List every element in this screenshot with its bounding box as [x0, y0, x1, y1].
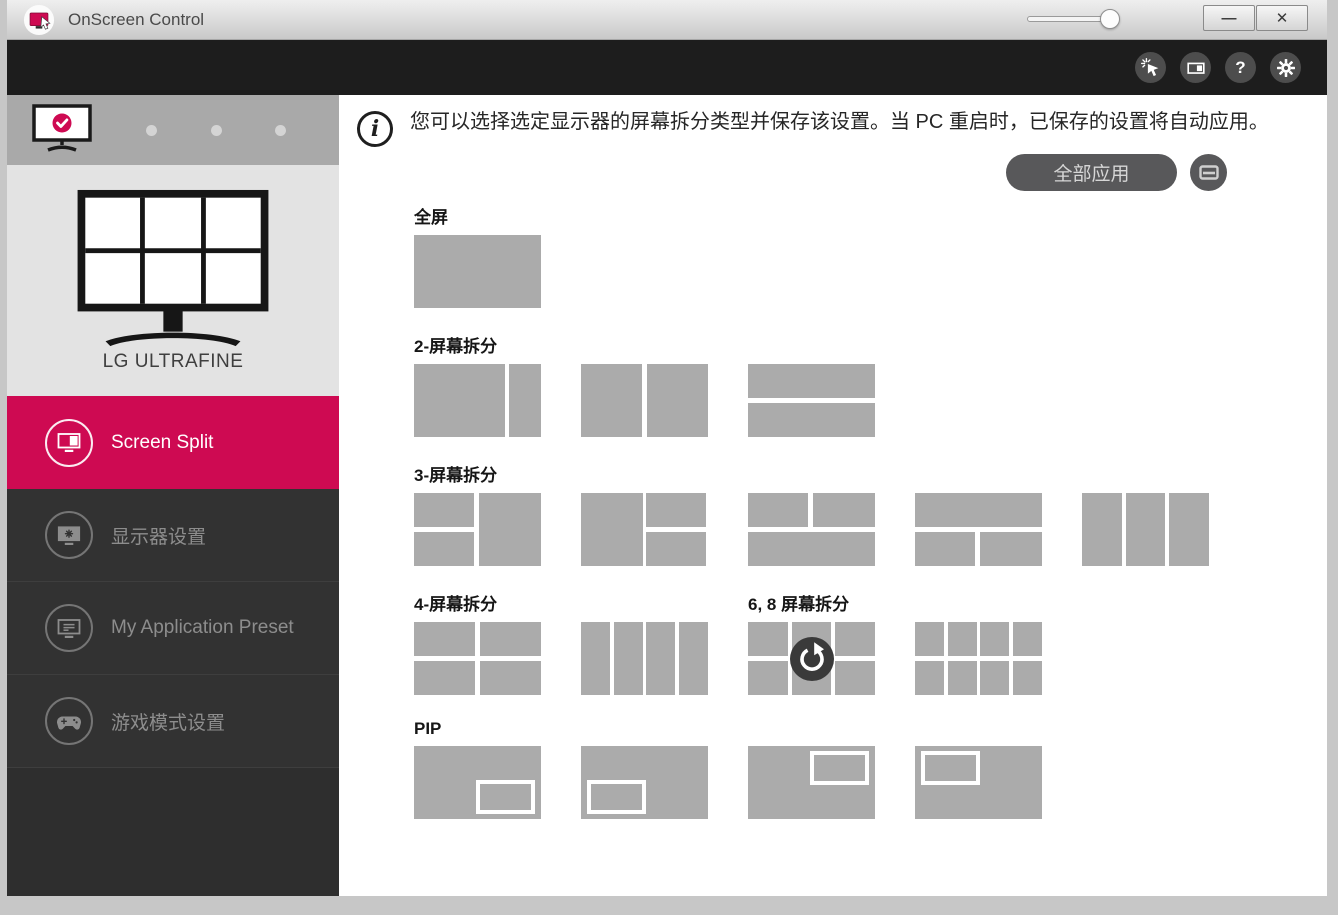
- split-cell: [414, 661, 475, 695]
- minimize-button[interactable]: —: [1203, 5, 1255, 31]
- app-window: OnScreen Control — ✕ ?: [0, 0, 1338, 915]
- split-thumb-4-split-grid[interactable]: [414, 622, 541, 695]
- apply-all-button[interactable]: 全部应用: [1006, 154, 1177, 191]
- auto-click-icon[interactable]: [1135, 52, 1166, 83]
- split-section: 3-屏幕拆分: [414, 461, 1209, 566]
- sidebar: LG ULTRAFINE Screen Split显示器设置My Applica…: [7, 95, 339, 896]
- split-thumb-2-split-left-wide[interactable]: [414, 364, 541, 437]
- split-cell: [1126, 493, 1166, 566]
- screen-split-icon: [45, 419, 93, 467]
- split-cell: [480, 622, 541, 656]
- sidebar-filler: [7, 768, 339, 896]
- opacity-slider-handle[interactable]: [1100, 9, 1120, 29]
- split-monitor-icon[interactable]: [1180, 52, 1211, 83]
- split-cell: [915, 532, 975, 566]
- section-label: 4-屏幕拆分: [414, 590, 708, 615]
- split-cell: [980, 622, 1009, 656]
- split-cell: [581, 364, 642, 437]
- game-icon: [45, 697, 93, 745]
- split-thumb-3-split-left-stacked[interactable]: [414, 493, 541, 566]
- settings-gear-icon[interactable]: [1270, 52, 1301, 83]
- info-text: 您可以选择选定显示器的屏幕拆分类型并保存该设置。当 PC 重启时，已保存的设置将…: [410, 109, 1307, 147]
- split-cell: [748, 622, 788, 656]
- split-cell: [1013, 661, 1042, 695]
- monitor-settings-icon: [45, 511, 93, 559]
- monitor-dot[interactable]: [275, 125, 286, 136]
- section-label: 3-屏幕拆分: [414, 461, 1209, 486]
- split-cell: [646, 532, 706, 566]
- window-title: OnScreen Control: [68, 10, 204, 30]
- pip-inset-window: [476, 780, 534, 814]
- monitor-preview: LG ULTRAFINE: [7, 165, 339, 396]
- split-cell: [748, 403, 875, 437]
- sidebar-item-label: 显示器设置: [111, 522, 206, 549]
- resize-grip[interactable]: [1333, 910, 1335, 912]
- split-cell: [948, 622, 977, 656]
- rotate-icon[interactable]: [789, 636, 835, 682]
- split-thumb-full-screen[interactable]: [414, 235, 541, 308]
- split-cell: [679, 622, 708, 695]
- sidebar-item-label: My Application Preset: [111, 617, 294, 639]
- help-icon[interactable]: ?: [1225, 52, 1256, 83]
- opacity-slider[interactable]: [1027, 16, 1111, 22]
- app-preset-icon: [45, 604, 93, 652]
- monitor-select-button[interactable]: [1190, 154, 1227, 191]
- monitor-dot[interactable]: [146, 125, 157, 136]
- section-label: 全屏: [414, 203, 541, 228]
- split-thumb-6-split-grid[interactable]: [748, 622, 875, 695]
- monitor-dot[interactable]: [211, 125, 222, 136]
- split-thumb-4-split-columns[interactable]: [581, 622, 708, 695]
- split-cell: [414, 235, 541, 308]
- split-section: 2-屏幕拆分: [414, 332, 875, 437]
- split-cell: [581, 622, 610, 695]
- split-cell: [647, 364, 708, 437]
- split-cell: [748, 532, 875, 566]
- info-icon: i: [357, 111, 393, 147]
- split-cell: [646, 493, 706, 527]
- split-cell: [915, 622, 944, 656]
- sidebar-item-screen-split[interactable]: Screen Split: [7, 396, 339, 489]
- top-toolbar: ?: [7, 40, 1327, 95]
- split-section: PIP: [414, 719, 1042, 819]
- split-cell: [980, 532, 1042, 566]
- split-cell: [1013, 622, 1042, 656]
- sidebar-item-label: 游戏模式设置: [111, 708, 225, 735]
- split-thumb-3-split-bottom-two[interactable]: [915, 493, 1042, 566]
- split-cell: [509, 364, 541, 437]
- split-thumb-pip-top-left[interactable]: [915, 746, 1042, 819]
- section-label: 6, 8 屏幕拆分: [748, 590, 1042, 615]
- close-button[interactable]: ✕: [1256, 5, 1308, 31]
- app-logo-icon: [23, 4, 55, 36]
- split-cell: [1169, 493, 1209, 566]
- split-cell: [414, 622, 475, 656]
- pip-inset-window: [810, 751, 868, 785]
- split-cell: [813, 493, 875, 527]
- split-thumb-pip-top-right[interactable]: [748, 746, 875, 819]
- monitor-name-label: LG ULTRAFINE: [103, 351, 244, 373]
- split-thumb-2-split-horizontal[interactable]: [748, 364, 875, 437]
- split-section: 6, 8 屏幕拆分: [748, 590, 1042, 695]
- split-cell: [479, 493, 541, 566]
- split-cell: [980, 661, 1009, 695]
- split-thumb-3-split-right-stacked[interactable]: [581, 493, 708, 566]
- monitor-selector: [7, 95, 339, 165]
- split-thumb-3-split-top-two[interactable]: [748, 493, 875, 566]
- split-cell: [414, 493, 474, 527]
- sidebar-item-my-application-preset[interactable]: My Application Preset: [7, 582, 339, 675]
- split-cell: [835, 661, 875, 695]
- split-cell: [646, 622, 675, 695]
- split-cell: [748, 661, 788, 695]
- title-bar[interactable]: OnScreen Control — ✕: [7, 0, 1327, 40]
- split-cell: [748, 364, 875, 398]
- split-cell: [414, 364, 505, 437]
- section-label: PIP: [414, 719, 1042, 739]
- split-thumb-2-split-vertical-equal[interactable]: [581, 364, 708, 437]
- sidebar-item-显示器设置[interactable]: 显示器设置: [7, 489, 339, 582]
- split-cell: [480, 661, 541, 695]
- split-cell: [948, 661, 977, 695]
- pip-inset-window: [921, 751, 979, 785]
- split-cell: [614, 622, 643, 695]
- section-label: 2-屏幕拆分: [414, 332, 875, 357]
- split-cell: [748, 493, 808, 527]
- split-section: 全屏: [414, 203, 541, 308]
- sidebar-item-游戏模式设置[interactable]: 游戏模式设置: [7, 675, 339, 768]
- split-cell: [915, 661, 944, 695]
- sidebar-item-label: Screen Split: [111, 432, 213, 454]
- split-thumb-8-split-grid[interactable]: [915, 622, 1042, 695]
- split-cell: [1082, 493, 1122, 566]
- selected-monitor-icon[interactable]: [31, 103, 93, 158]
- split-cell: [915, 493, 1042, 527]
- split-thumb-pip-bottom-left[interactable]: [581, 746, 708, 819]
- main-panel: i 您可以选择选定显示器的屏幕拆分类型并保存该设置。当 PC 重启时，已保存的设…: [339, 95, 1327, 896]
- pip-inset-window: [587, 780, 645, 814]
- monitor-preview-graphic: [76, 189, 270, 349]
- split-thumb-pip-bottom-right[interactable]: [414, 746, 541, 819]
- split-cell: [414, 532, 474, 566]
- split-section: 4-屏幕拆分: [414, 590, 708, 695]
- split-cell: [835, 622, 875, 656]
- split-thumb-3-split-columns[interactable]: [1082, 493, 1209, 566]
- split-cell: [581, 493, 643, 566]
